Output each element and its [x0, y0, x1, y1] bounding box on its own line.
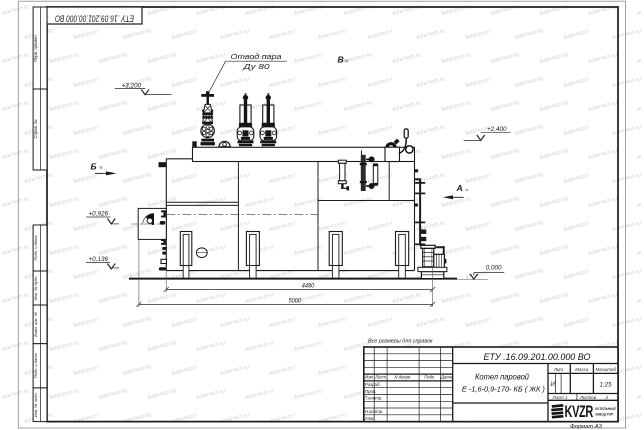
svg-text:Пров.: Пров. — [365, 389, 377, 394]
svg-text:Инв. № подл.: Инв. № подл. — [33, 392, 38, 417]
svg-text:0,000: 0,000 — [486, 265, 502, 271]
svg-text:+2,400: +2,400 — [487, 127, 507, 133]
svg-text:Справ. №: Справ. № — [33, 119, 38, 138]
svg-text:Н.контр.: Н.контр. — [365, 409, 384, 414]
svg-text:ЗАВОД РЭП: ЗАВОД РЭП — [595, 412, 613, 417]
svg-text:Все размеры для справок: Все размеры для справок — [368, 339, 433, 345]
svg-text:1:25: 1:25 — [599, 381, 612, 388]
svg-text:КОТЕЛЬНЫЙ: КОТЕЛЬНЫЙ — [595, 406, 616, 411]
svg-text:Отвод пара: Отвод пара — [231, 52, 282, 61]
svg-text:5000: 5000 — [288, 297, 301, 304]
svg-text:ЕТУ .16.09.201.00.000 ВО: ЕТУ .16.09.201.00.000 ВО — [484, 352, 591, 363]
svg-text:Изм: Изм — [365, 375, 373, 380]
svg-text:Масса: Масса — [575, 367, 589, 372]
svg-text:Лист 1: Лист 1 — [552, 395, 569, 400]
svg-text:4480: 4480 — [302, 282, 315, 289]
svg-text:+0,136: +0,136 — [89, 257, 109, 263]
svg-text:И: И — [551, 382, 556, 388]
svg-text:Формат А3: Формат А3 — [570, 424, 602, 430]
svg-text:Подп. и дата: Подп. и дата — [33, 353, 38, 379]
svg-text:Перв. примен.: Перв. примен. — [33, 34, 38, 62]
svg-text:Листов: Листов — [579, 395, 597, 400]
svg-text:Разраб.: Разраб. — [365, 382, 381, 387]
svg-text:В: В — [338, 54, 344, 64]
svg-text:2: 2 — [605, 395, 609, 400]
svg-text:Подп. и дата: Подп. и дата — [33, 235, 38, 261]
svg-text:А: А — [456, 183, 463, 193]
svg-text:KVZR: KVZR — [565, 403, 594, 421]
svg-text:Утв.: Утв. — [365, 416, 375, 421]
svg-text:Лит.: Лит. — [553, 367, 564, 372]
svg-text:N докум.: N докум. — [395, 375, 412, 380]
svg-text:Масштаб: Масштаб — [595, 367, 616, 372]
svg-text:Лист: Лист — [374, 375, 386, 380]
svg-text:Б: Б — [91, 162, 97, 172]
svg-text:Е -1,6-0,9-170- КБ ( ЖК ): Е -1,6-0,9-170- КБ ( ЖК ) — [462, 384, 546, 393]
svg-text:Т.контр.: Т.контр. — [365, 396, 383, 401]
svg-text:Дата: Дата — [440, 375, 453, 380]
svg-text:Инв. № дубл.: Инв. № дубл. — [33, 276, 38, 301]
svg-text:Котел паровой: Котел паровой — [475, 372, 529, 382]
svg-text:ЕТУ .16.09.201.00.000 ВО: ЕТУ .16.09.201.00.000 ВО — [55, 14, 134, 24]
svg-text:Подп.: Подп. — [424, 375, 435, 380]
svg-text:Взам. инв. №: Взам. инв. № — [33, 311, 38, 336]
svg-text:Ду 80: Ду 80 — [242, 62, 269, 71]
